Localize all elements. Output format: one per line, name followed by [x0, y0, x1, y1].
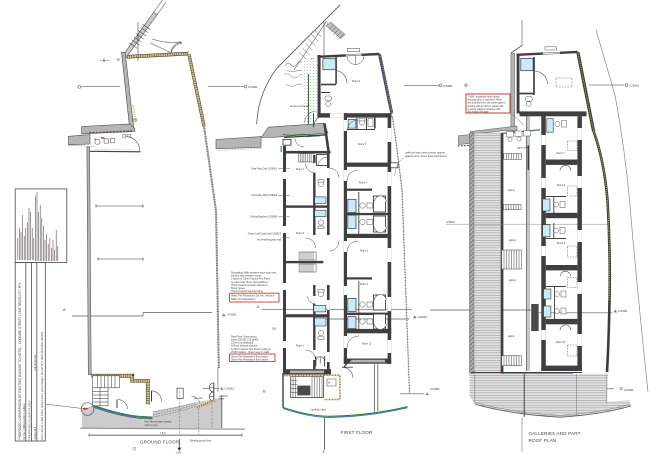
svg-text:ROOF PLAN: ROOF PLAN	[529, 438, 557, 443]
svg-text:gallery: gallery	[508, 189, 516, 192]
svg-text:electricity: electricity	[219, 395, 229, 398]
svg-text:Room 6: Room 6	[358, 144, 367, 146]
svg-text:for remaining party wall: for remaining party wall	[257, 238, 281, 241]
svg-text:leading wall do 727mm plastic: leading wall do 727mm plastic wall	[468, 105, 504, 108]
svg-text:lift: lift	[328, 382, 331, 385]
svg-text:77810 Lancashire extra having: 77810 Lancashire extra having	[468, 96, 501, 99]
svg-text:Room 8: Room 8	[557, 185, 566, 187]
svg-text:C/S061: C/S061	[630, 84, 640, 88]
svg-text:PROPOSED CONVERSION OF EXISTIN: PROPOSED CONVERSION OF EXISTING GARAGE T…	[18, 282, 22, 440]
svg-text:C/S061: C/S061	[618, 309, 628, 313]
svg-text:Walls: Fire Resistance: Walls: Fire Resistance	[231, 298, 256, 301]
svg-text:upper deck: upper deck	[517, 147, 529, 150]
svg-text:Rear Roof Cafe C/S0601: Rear Roof Cafe C/S0601	[251, 168, 277, 171]
svg-text:Room 10: Room 10	[556, 342, 566, 344]
svg-text:Walls: Fire Resistance 1hr min: Walls: Fire Resistance 1hr min. wall and	[231, 295, 275, 298]
svg-text:300: 300	[272, 328, 277, 331]
svg-text:30min Fire Resistance floor ab: 30min Fire Resistance floor above	[231, 358, 269, 361]
svg-text:Timber Leaf Cavity wall C/S061: Timber Leaf Cavity wall C/S0613	[248, 232, 282, 235]
svg-text:25x50 battens. Joists hung on: 25x50 battens. Joists hung on walls	[231, 351, 270, 354]
svg-text:meter: meter	[219, 398, 225, 401]
svg-text:Drawn 13.4: Drawn 13.4	[34, 426, 37, 439]
svg-text:gallery: gallery	[509, 279, 517, 282]
svg-text:Landing / lobby: Landing / lobby	[311, 409, 327, 411]
svg-text:Room 4: Room 4	[359, 183, 368, 185]
svg-text:Folding Brackets C/S0609: Folding Brackets C/S0609	[250, 216, 277, 219]
svg-text:Room 9: Room 9	[557, 243, 566, 245]
svg-text:C/S061: C/S061	[418, 315, 428, 319]
svg-text:A: A	[63, 307, 66, 312]
svg-text:uphill and side roofs covered: uphill and side roofs covered support	[405, 152, 445, 155]
svg-text:C/S061: C/S061	[430, 387, 440, 391]
svg-text:ensuring all to 2 combined 34m: ensuring all to 2 combined 34mm	[468, 99, 502, 102]
svg-text:GROUND FLOOR: GROUND FLOOR	[140, 440, 180, 445]
svg-text:A: A	[257, 304, 260, 309]
svg-text:75mm Isowool Superior Wing: 75mm Isowool Superior Wing	[231, 290, 263, 293]
svg-text:GALLERIES AND PART: GALLERIES AND PART	[529, 431, 581, 436]
svg-text:this respect the gate: this respect the gate	[468, 110, 490, 113]
svg-text:gallery: gallery	[508, 335, 516, 338]
svg-text:C/S061: C/S061	[248, 85, 258, 89]
svg-text:C/S061: C/S061	[225, 386, 235, 390]
svg-text:Feb 09 AS 910: Feb 09 AS 910	[34, 354, 37, 371]
svg-text:Room 1: Room 1	[296, 346, 305, 348]
svg-text:Access to footpath: Access to footpath	[290, 105, 310, 108]
svg-text:Touch Wood | Little Park | Hay: Touch Wood | Little Park | Haye Lane | L…	[40, 331, 44, 440]
svg-text:gallery: gallery	[509, 239, 517, 242]
svg-text:C/S061: C/S061	[624, 388, 634, 392]
svg-text:against burst / future flash a: against burst / future flash and barrier…	[405, 155, 448, 158]
svg-text:Room 5: Room 5	[296, 233, 305, 235]
svg-text:down to grey: down to grey	[145, 424, 159, 427]
svg-text:Room 10: Room 10	[362, 344, 372, 346]
svg-text:Full Cavity Wall C/S0608: Full Cavity Wall C/S0608	[252, 194, 278, 197]
svg-text:C/S061: C/S061	[227, 313, 237, 317]
svg-text:New Tarmacadam footway: New Tarmacadam footway	[145, 421, 173, 424]
svg-text:Existing ground level: Existing ground level	[190, 440, 212, 443]
svg-text:7.5xx: 7.5xx	[160, 433, 166, 435]
svg-text:Room 2: Room 2	[360, 251, 369, 253]
svg-text:slot boundries firm the earlie: slot boundries firm the earlier glass if	[468, 102, 506, 105]
svg-text:Room 7: Room 7	[557, 153, 566, 155]
svg-text:for the L Gibbonsville G Gibbo: for the L Gibbonsville G Gibbon	[22, 403, 26, 440]
svg-text:C/S061: C/S061	[443, 84, 453, 88]
svg-text:Room 7: Room 7	[296, 169, 305, 171]
svg-text:gas side: gas side	[194, 398, 203, 400]
svg-text:Room 3: Room 3	[360, 284, 369, 286]
svg-text:B: B	[263, 388, 266, 393]
svg-text:C/S0621: C/S0621	[446, 222, 456, 224]
svg-text:Room 9: Room 9	[352, 81, 361, 83]
svg-text:FIRST FLOOR: FIRST FLOOR	[341, 430, 373, 435]
svg-text:PROPOSED FLOOR PLANS: PROPOSED FLOOR PLANS	[27, 401, 31, 440]
